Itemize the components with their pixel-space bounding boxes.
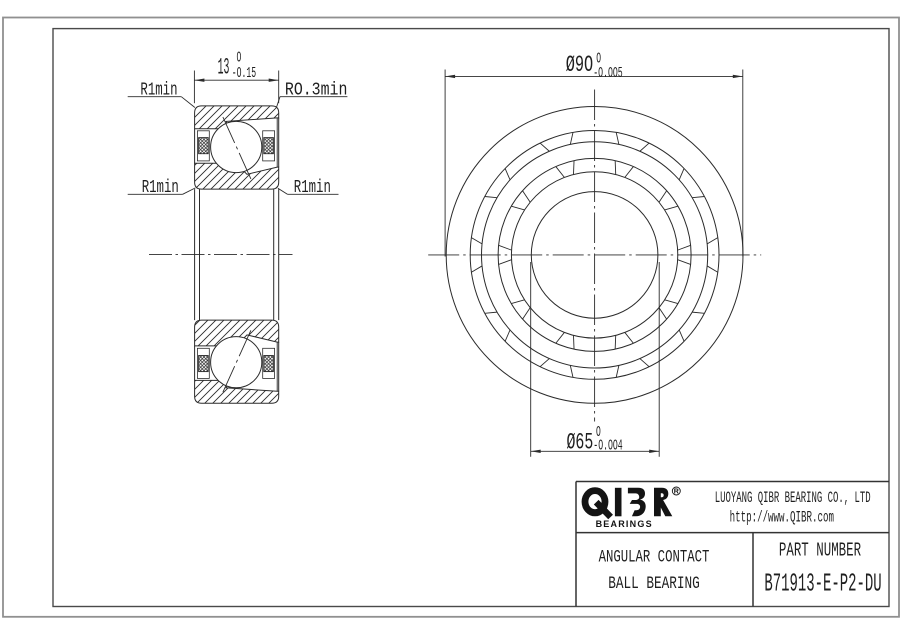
svg-text:-O.OO5: -O.OO5 — [593, 66, 623, 82]
svg-text:RO.3min: RO.3min — [285, 80, 348, 101]
svg-text:PART NUMBER: PART NUMBER — [779, 539, 861, 561]
svg-text:-O.OO4: -O.OO4 — [593, 438, 622, 454]
svg-text:BEARINGS: BEARINGS — [596, 519, 652, 529]
svg-text:Ø9O: Ø9O — [566, 52, 593, 78]
svg-text:LUOYANG QIBR BEARING CO., LTD: LUOYANG QIBR BEARING CO., LTD — [715, 489, 871, 507]
svg-text:ANGULAR CONTACT: ANGULAR CONTACT — [599, 548, 710, 567]
svg-text:B71913-E-P2-DU: B71913-E-P2-DU — [764, 568, 881, 598]
svg-text:O: O — [596, 51, 601, 67]
svg-text:BALL BEARING: BALL BEARING — [608, 574, 700, 594]
svg-text:Ø65: Ø65 — [567, 430, 594, 456]
svg-text:-O.15: -O.15 — [232, 66, 256, 82]
svg-text:http://www.QIBR.com: http://www.QIBR.com — [730, 509, 834, 527]
svg-text:R1min: R1min — [140, 80, 177, 101]
svg-text:R: R — [674, 489, 679, 496]
svg-text:O: O — [237, 51, 242, 67]
svg-text:13: 13 — [218, 55, 230, 81]
